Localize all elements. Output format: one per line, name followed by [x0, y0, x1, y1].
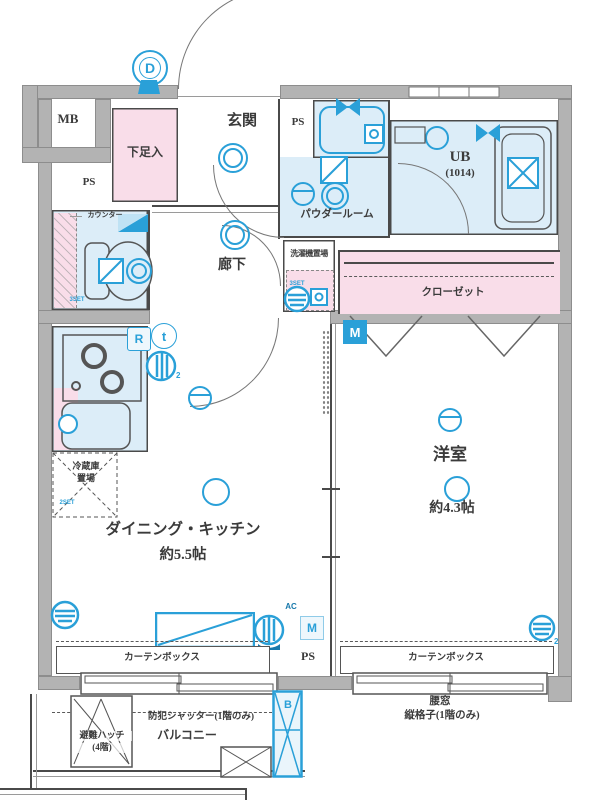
hatch-label-2: (4階) — [78, 743, 126, 753]
floor-plan: 2 AC R t 2 D M M MB PS PS PS 玄関 下足入 パウダー… — [0, 0, 600, 800]
mirror-square-icon — [320, 156, 348, 184]
closet-hanger-dashed — [344, 276, 554, 277]
hatch-label-1: 避難ハッチ — [72, 731, 132, 741]
genkan-label: 玄関 — [212, 113, 272, 130]
dk-label: ダイニング・キッチン — [92, 521, 274, 538]
set-label-toilet: 3SET — [64, 297, 90, 304]
ub-size-label: (1014) — [430, 167, 490, 179]
fridge-label-1: 冷蔵庫 — [58, 462, 114, 472]
wall-light-icon — [186, 386, 214, 410]
balcony-divider2 — [36, 694, 37, 790]
shoe-label: 下足入 — [114, 146, 176, 159]
top-window — [408, 86, 500, 98]
fan-icon — [336, 98, 360, 116]
closet-label: クローゼット — [408, 287, 498, 299]
outlet-icon — [50, 600, 80, 630]
b-badge: B — [279, 696, 297, 714]
sink-icon — [58, 402, 134, 452]
partition-hatch — [322, 330, 330, 415]
laundry-label: 洗濯機置場 — [283, 250, 335, 259]
sliding-window-left — [80, 672, 278, 695]
toilet-light-icon — [126, 258, 152, 284]
outlet-count: 2 — [554, 638, 558, 647]
curtain-dash-right — [340, 641, 552, 642]
closet-folding-door-icon — [466, 314, 542, 358]
switch-box-icon — [364, 124, 384, 144]
counter-leader — [70, 216, 82, 217]
western-light-icon — [444, 476, 470, 502]
closet — [338, 250, 560, 314]
wall-segment — [548, 676, 572, 702]
ps-label-top: PS — [283, 116, 313, 128]
curtain-dash-left — [56, 641, 268, 642]
doorbell-base-icon — [138, 80, 160, 94]
ps-label-left: PS — [76, 176, 102, 188]
drain-box-icon — [220, 746, 272, 778]
ps-label-bottom: PS — [293, 650, 323, 663]
fan-icon — [476, 124, 500, 142]
sliding-window-right — [352, 672, 548, 695]
wall-segment — [278, 676, 352, 690]
wall-segment — [38, 99, 52, 676]
entrance-threshold — [178, 96, 280, 97]
dk-size-label: 約5.5帖 — [92, 548, 274, 564]
balcony-divider — [30, 694, 32, 790]
wall-segment — [22, 147, 111, 163]
partition-tick — [322, 488, 340, 490]
partition-tick — [322, 556, 340, 558]
genkan-light-icon — [218, 143, 248, 173]
koshimado-label: 腰窓 — [418, 696, 462, 708]
multimedia-badge-upper: M — [343, 320, 367, 344]
western-label: 洋室 — [415, 446, 485, 465]
curtain-box-left-label: カーテンボックス — [56, 653, 268, 663]
wall-segment — [558, 99, 572, 702]
balcony-outer-corner — [245, 788, 247, 800]
set-label-fridge: 2SET — [54, 500, 80, 507]
lattice-label: 縦格子(1階のみ) — [388, 710, 496, 722]
multimedia-badge-lower: M — [300, 616, 324, 640]
fridge-label-2: 置場 — [58, 474, 114, 484]
balcony-label: バルコニー — [142, 729, 232, 742]
ub-label: UB — [438, 149, 482, 166]
wall-line — [278, 236, 390, 238]
set-label-laundry: 3SET — [284, 281, 310, 288]
counter-label: カウンター — [82, 212, 128, 220]
powder-label: パウダールーム — [287, 209, 387, 221]
air-conditioner-icon — [155, 612, 255, 648]
entrance-door-arc — [178, 0, 279, 89]
outlet-count: 2 — [176, 372, 180, 381]
wall-segment — [38, 676, 80, 690]
partition-wall2 — [335, 324, 336, 676]
balcony-outer-line — [0, 788, 247, 790]
western-size-label: 約4.3帖 — [412, 501, 492, 516]
bathtub-icon — [494, 126, 552, 230]
doorbell-letter: D — [139, 57, 161, 79]
outlet-bars-icon — [145, 350, 177, 382]
outlet-icon — [283, 285, 311, 313]
pipe-space-strip — [54, 213, 77, 308]
curtain-box-right-label: カーテンボックス — [340, 653, 552, 663]
partition-wall — [330, 324, 332, 676]
bath-light-icon — [425, 126, 449, 150]
fridge-outlet-badge: R — [127, 327, 151, 351]
hallway-label: 廊下 — [206, 258, 258, 273]
mb-label: MB — [48, 112, 88, 126]
hallway-light-icon — [220, 220, 250, 250]
wall-line — [388, 100, 390, 237]
wall-light-icon — [289, 182, 317, 206]
bath-counter-icon — [394, 126, 426, 144]
mirror-square-icon — [98, 258, 124, 284]
outlet-icon — [528, 614, 556, 642]
balcony-outer-line2 — [0, 794, 247, 795]
shutter-label: 防犯シャッター(1階のみ) — [138, 712, 264, 722]
ac-label: AC — [281, 603, 301, 612]
closet-hanger-pipe — [344, 262, 554, 264]
powder-light-icon — [321, 182, 349, 210]
dk-light-icon — [202, 478, 230, 506]
switch-box-icon — [310, 288, 328, 306]
wall-light-icon — [436, 408, 464, 432]
wall-segment — [38, 310, 150, 324]
thermostat-badge: t — [151, 323, 177, 349]
